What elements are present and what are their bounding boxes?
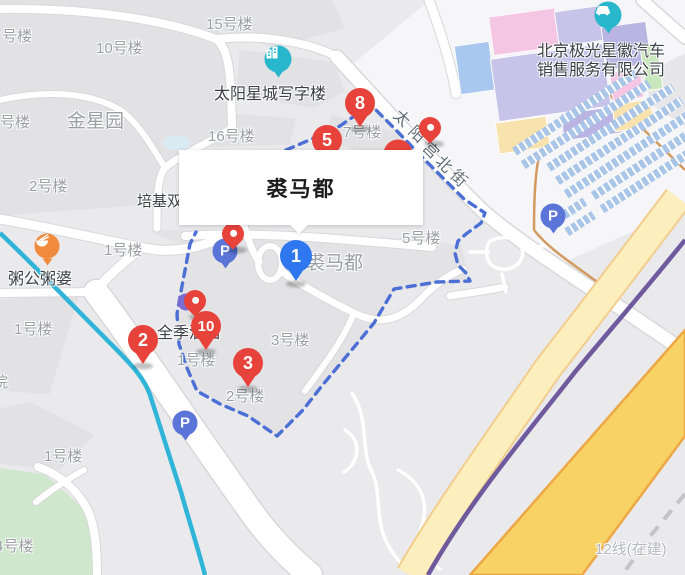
marker-red-3[interactable]: 3 [233,348,263,378]
marker-tail [288,269,304,281]
pin-dot [191,295,201,305]
marker-red-2[interactable]: 2 [128,325,158,355]
marker-number: 5 [322,130,332,151]
marker-shadow [286,281,306,288]
red-pin[interactable] [414,112,445,143]
pin-dot [426,122,436,132]
marker-tail [240,375,256,387]
marker-number: 8 [355,93,365,114]
infobox-tail [290,225,308,234]
marker-tail [352,115,368,127]
marker-red-8[interactable]: 8 [345,88,375,118]
marker-number: 2 [138,330,148,351]
marker-number: 10 [198,318,215,335]
map-canvas[interactable]: 号楼10号楼15号楼号楼金星园2号楼16号楼7号楼1号楼培基双5号楼裘马都3号楼… [0,0,685,575]
marker-tail [135,352,151,364]
marker-number: 3 [243,353,253,374]
marker-number: 1 [291,246,301,267]
pin-dot [229,228,239,238]
infobox[interactable]: 裘马都 [179,150,423,225]
infobox-title: 裘马都 [267,173,336,203]
marker-tail [198,338,214,350]
marker-blue-1[interactable]: 1 [280,240,312,272]
marker-red-10[interactable]: 10 [191,311,221,341]
